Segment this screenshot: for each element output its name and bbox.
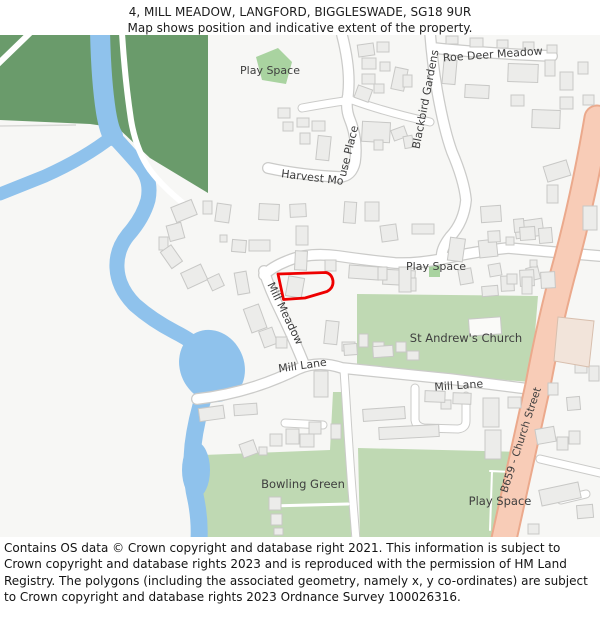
map-canvas: Play Space Roe Deer Meadow Blackbird Gar… [0,35,600,537]
label-st-andrews-church: St Andrew's Church [410,331,522,345]
copyright-attribution: Contains OS data © Crown copyright and d… [4,540,597,606]
label-play-space-top: Play Space [240,64,300,77]
property-address-title: 4, MILL MEADOW, LANGFORD, BIGGLESWADE, S… [0,5,600,19]
field-boundary-line [0,125,76,126]
property-map-page: 4, MILL MEADOW, LANGFORD, BIGGLESWADE, S… [0,0,600,625]
label-play-space-mid: Play Space [406,260,466,273]
label-bowling-green: Bowling Green [261,477,345,491]
special-building [554,317,594,367]
label-play-space-bottom: Play Space [469,494,532,508]
map-area: Play Space Roe Deer Meadow Blackbird Gar… [0,35,600,537]
bowling-green-path [270,504,348,506]
map-subtitle: Map shows position and indicative extent… [0,21,600,35]
map-header: 4, MILL MEADOW, LANGFORD, BIGGLESWADE, S… [0,0,600,35]
